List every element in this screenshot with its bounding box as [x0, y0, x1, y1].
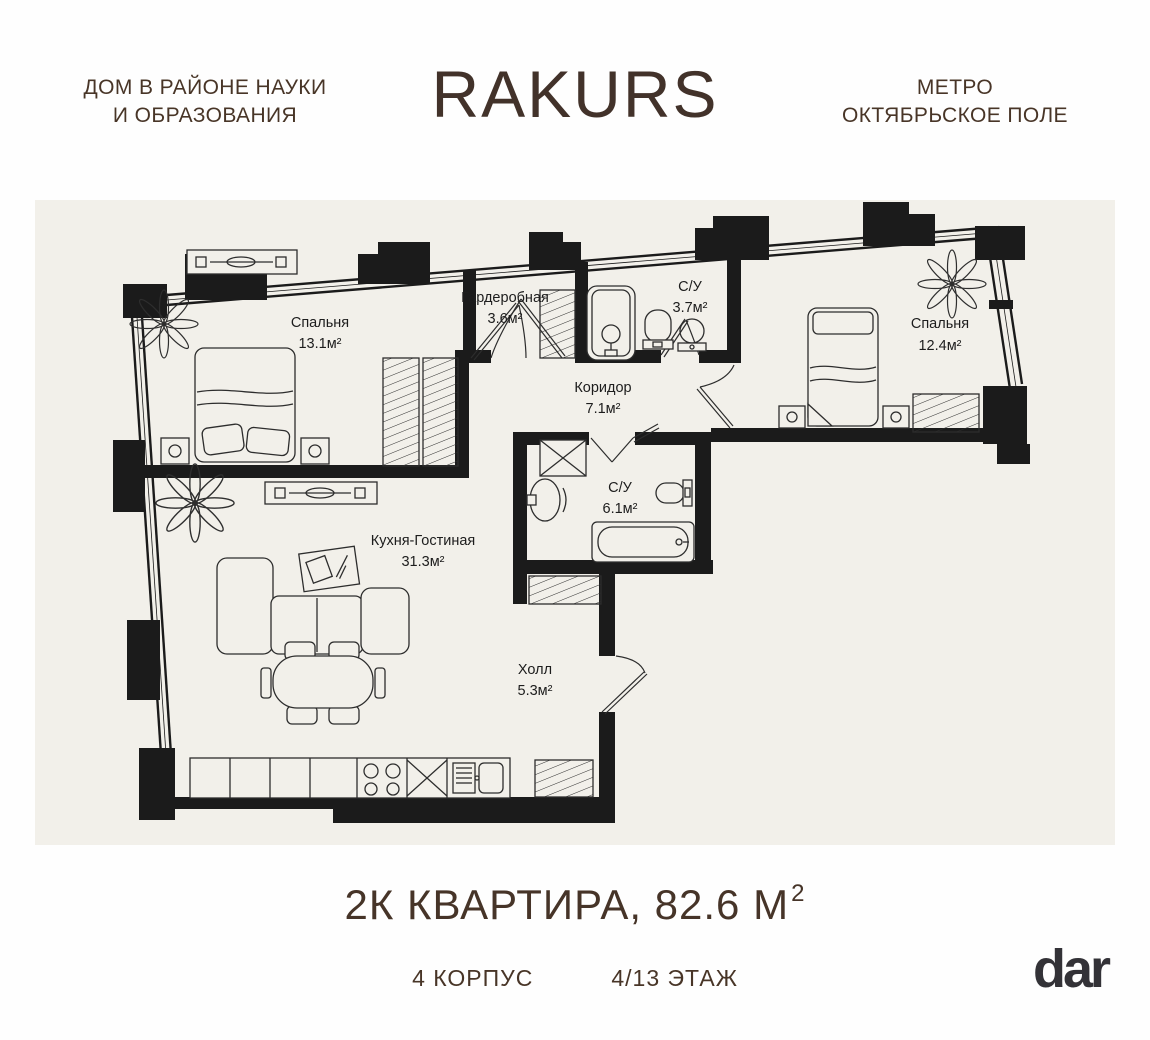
closet: [423, 358, 458, 466]
nightstand: [301, 438, 329, 464]
developer-logo: dar: [1033, 938, 1108, 1000]
building-label: 4 КОРПУС: [412, 965, 533, 992]
nightstand: [161, 438, 189, 464]
bed-left: [195, 348, 295, 462]
closet: [535, 760, 593, 797]
toilet: [643, 310, 673, 349]
right-tagline: МЕТРО ОКТЯБРЬСКОЕ ПОЛЕ: [800, 74, 1110, 129]
room-area-bath1: 3.7м²: [673, 300, 708, 316]
room-area-wardrobe: 3.6м²: [488, 311, 523, 327]
apartment-title: 2К КВАРТИРА, 82.6 М2: [0, 880, 1150, 929]
console-shelf: [265, 482, 377, 504]
nightstand: [883, 406, 909, 428]
apartment-subinfo: 4 КОРПУС 4/13 ЭТАЖ: [0, 965, 1150, 992]
nightstand: [779, 406, 805, 428]
room-label-wardrobe: Гардеробная: [461, 290, 549, 306]
brand-logo: RAKURS: [431, 56, 718, 132]
room-label-bath1: С/У: [678, 279, 703, 295]
room-area-bedroom1: 13.1м²: [298, 336, 341, 352]
room-label-kitchen-living: Кухня-Гостиная: [371, 533, 476, 549]
room-area-bath2: 6.1м²: [603, 501, 638, 517]
bath-sink: [527, 479, 566, 521]
floor-plan: Спальня 13.1м² Гардеробная 3.6м² С/У 3.7…: [35, 200, 1115, 845]
plant-icon: [918, 250, 986, 318]
room-label-corridor: Коридор: [574, 380, 631, 396]
apartment-title-main: 2К КВАРТИРА, 82.6 М: [345, 881, 790, 928]
console-shelf: [187, 250, 297, 274]
bathtub: [592, 522, 694, 562]
apartment-title-sup: 2: [791, 880, 805, 907]
washing-machine: [540, 440, 586, 476]
closet: [383, 358, 419, 466]
floor-plan-panel: Спальня 13.1м² Гардеробная 3.6м² С/У 3.7…: [35, 200, 1115, 845]
bed-right: [808, 308, 878, 426]
room-area-hall: 5.3м²: [518, 683, 553, 699]
tv: [299, 546, 360, 591]
toilet: [656, 480, 692, 506]
closet: [529, 576, 601, 604]
room-label-bath2: С/У: [608, 480, 633, 496]
room-area-bedroom2: 12.4м²: [918, 338, 961, 354]
furniture: [161, 250, 979, 798]
room-label-hall: Холл: [518, 662, 552, 678]
shower: [587, 286, 635, 360]
kitchen-counter: [190, 758, 510, 798]
floor-label: 4/13 ЭТАЖ: [611, 965, 738, 992]
window-band-left: [131, 302, 174, 800]
room-area-kitchen-living: 31.3м²: [401, 554, 444, 570]
closet: [913, 394, 979, 432]
room-label-bedroom2: Спальня: [911, 316, 969, 332]
room-area-corridor: 7.1м²: [586, 401, 621, 417]
room-label-bedroom1: Спальня: [291, 315, 349, 331]
left-tagline: ДОМ В РАЙОНЕ НАУКИ И ОБРАЗОВАНИЯ: [40, 74, 370, 129]
